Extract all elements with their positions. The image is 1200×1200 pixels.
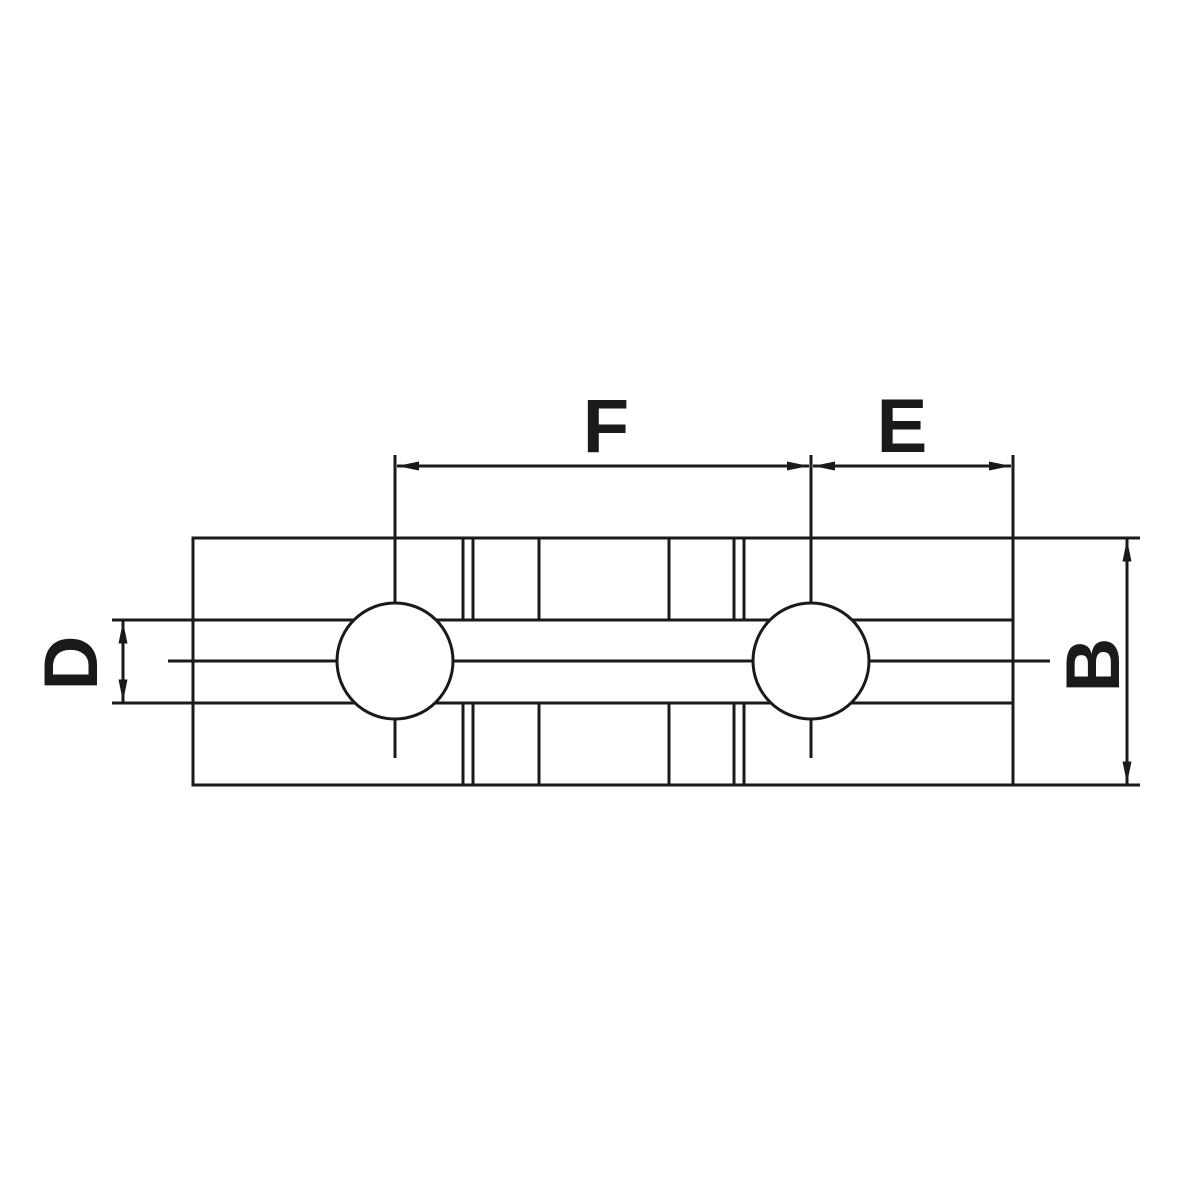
dimension-f-arrow-right [787,462,809,471]
dimension-e: E [813,384,1013,538]
hole-left-circle [337,603,453,719]
soft-jaw-technical-drawing: F E D B [0,0,1200,1200]
dimension-b-arrow-bottom [1123,762,1132,784]
hole-right [753,455,869,758]
dimension-f-label: F [583,384,629,469]
dimension-d-label: D [29,636,114,691]
dimension-b-arrow-top [1123,540,1132,562]
dimension-f-arrow-left [397,462,419,471]
dimension-d-arrow-top [119,622,128,644]
dimension-e-arrow-left [813,462,835,471]
dimension-e-label: E [877,384,928,469]
dimension-d-arrow-bottom [119,680,128,702]
hole-left [337,455,453,758]
dimension-f: F [397,384,809,471]
hole-right-circle [753,603,869,719]
part-body [112,538,1050,785]
dimension-b-label: B [1051,638,1136,693]
drawing-canvas: F E D B [0,0,1200,1200]
dimension-d: D [29,620,128,703]
dimension-e-arrow-right [989,462,1011,471]
